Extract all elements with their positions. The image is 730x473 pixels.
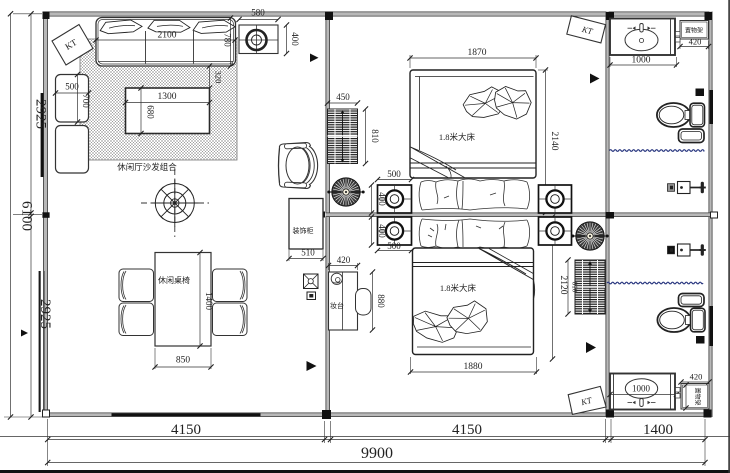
svg-text:420: 420: [337, 255, 351, 265]
svg-text:450: 450: [336, 92, 350, 102]
svg-text:1000: 1000: [632, 56, 651, 66]
svg-text:2925: 2925: [33, 99, 49, 129]
svg-text:休闲厅沙发组合: 休闲厅沙发组合: [117, 162, 177, 172]
svg-text:780: 780: [223, 33, 233, 47]
svg-text:置物架: 置物架: [694, 387, 702, 405]
svg-text:400: 400: [290, 32, 300, 46]
svg-text:1300: 1300: [158, 92, 177, 102]
svg-text:2140: 2140: [549, 132, 559, 151]
svg-text:1400: 1400: [643, 422, 673, 438]
svg-text:2925: 2925: [37, 299, 53, 329]
svg-text:320: 320: [214, 71, 224, 84]
svg-text:400: 400: [377, 224, 387, 238]
svg-text:置物架: 置物架: [685, 27, 703, 35]
svg-text:1.8米大床: 1.8米大床: [440, 283, 477, 293]
svg-text:510: 510: [301, 248, 315, 258]
svg-text:700: 700: [81, 94, 91, 108]
svg-text:2120: 2120: [558, 276, 568, 295]
svg-text:810: 810: [571, 282, 579, 293]
svg-text:休闲桌椅: 休闲桌椅: [158, 275, 190, 285]
svg-text:4150: 4150: [452, 422, 482, 438]
svg-text:420: 420: [689, 37, 702, 47]
svg-text:1.8米大床: 1.8米大床: [439, 132, 476, 142]
svg-text:9900: 9900: [361, 445, 393, 462]
svg-text:装饰柜: 装饰柜: [293, 226, 314, 235]
svg-text:880: 880: [376, 294, 386, 308]
svg-text:妆台: 妆台: [330, 301, 344, 310]
svg-text:500: 500: [387, 169, 401, 179]
svg-text:4150: 4150: [171, 422, 201, 438]
svg-text:500: 500: [387, 241, 401, 251]
svg-text:1880: 1880: [464, 362, 483, 372]
svg-text:420: 420: [690, 372, 703, 382]
svg-text:1870: 1870: [468, 48, 487, 58]
svg-text:850: 850: [176, 356, 191, 366]
svg-text:2100: 2100: [158, 31, 177, 41]
svg-text:6100: 6100: [19, 201, 35, 231]
svg-text:580: 580: [251, 8, 265, 18]
svg-text:680: 680: [146, 105, 156, 119]
svg-text:810: 810: [370, 129, 380, 143]
svg-text:1000: 1000: [632, 384, 651, 394]
svg-text:400: 400: [377, 192, 387, 206]
